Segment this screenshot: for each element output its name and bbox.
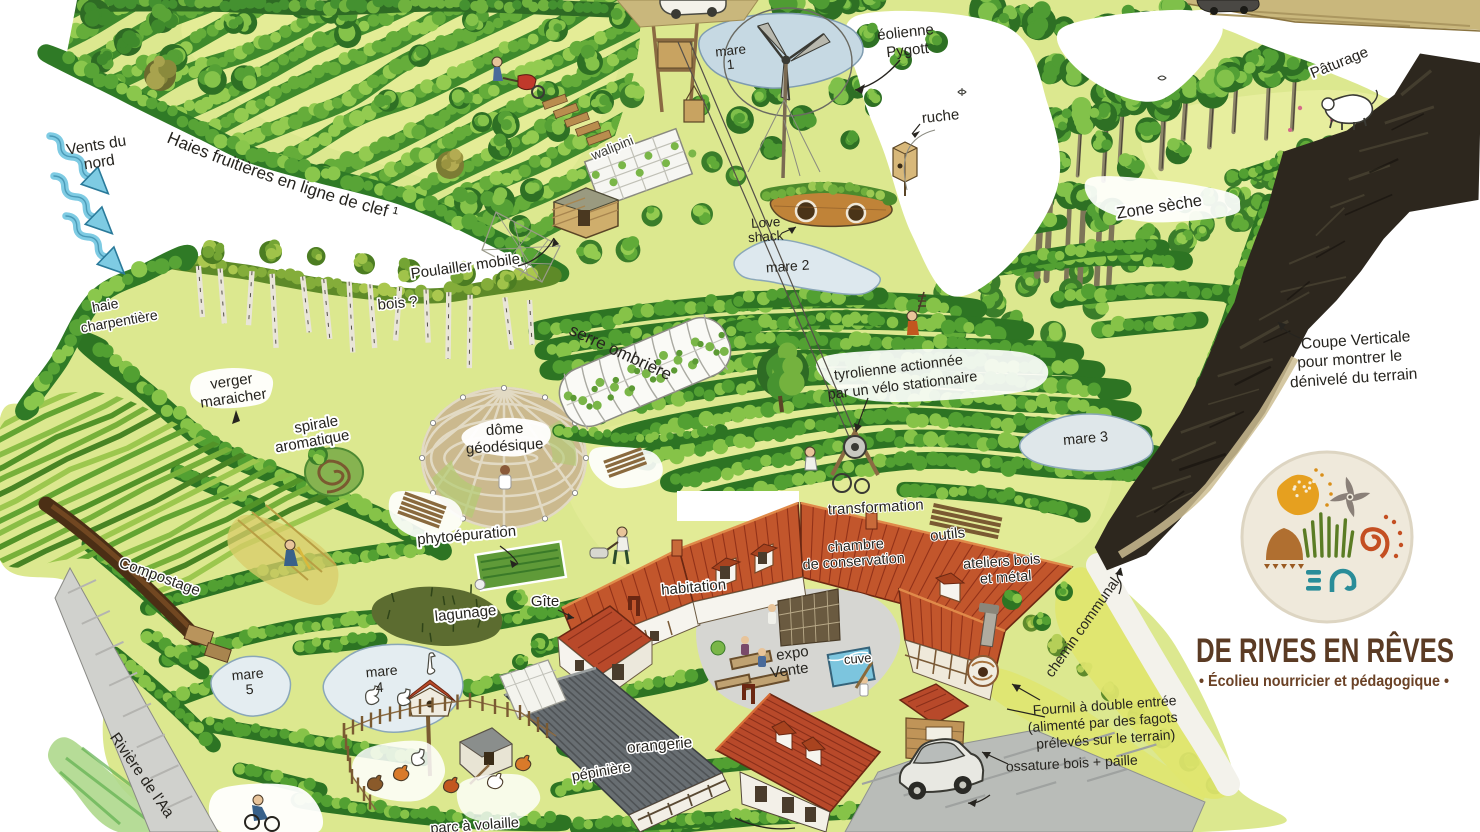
svg-text:mare: mare (365, 662, 398, 681)
svg-text:1: 1 (726, 57, 735, 73)
svg-text:cuve: cuve (843, 650, 871, 667)
svg-text:mare 2: mare 2 (765, 256, 810, 275)
svg-text:outils: outils (929, 524, 966, 545)
svg-text:5: 5 (245, 681, 254, 698)
svg-text:• Écolieu nourricier et pédago: • Écolieu nourricier et pédagogique • (1199, 673, 1449, 690)
svg-text:shack: shack (748, 228, 784, 245)
svg-text:bois ?: bois ? (377, 293, 418, 313)
svg-text:nord: nord (83, 152, 116, 174)
svg-text:Gîte: Gîte (531, 593, 559, 610)
svg-text:4: 4 (375, 679, 384, 696)
svg-text:DE RIVES EN RÊVES: DE RIVES EN RÊVES (1196, 632, 1454, 670)
